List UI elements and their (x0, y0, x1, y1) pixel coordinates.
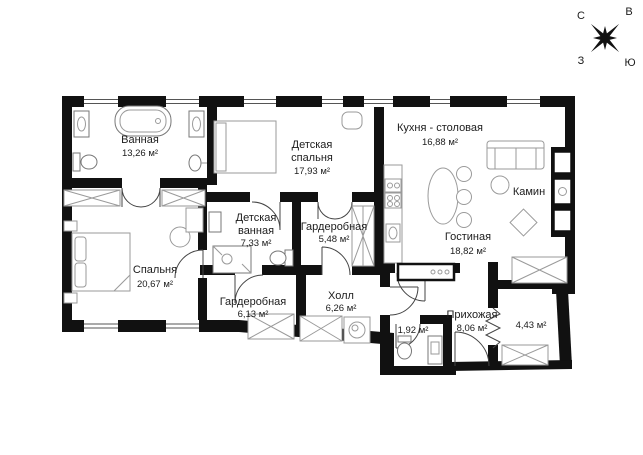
label-fireplace: Камин (513, 186, 545, 198)
floor-plan-svg: Ванная 13,26 м² Детская спальня 17,93 м²… (0, 0, 643, 455)
label-hall: Холл (328, 290, 354, 302)
label-wardrobe-small: Гардеробная (301, 221, 368, 233)
area-kids-bedroom: 17,93 м² (294, 166, 330, 177)
wardrobe-icon (512, 257, 567, 283)
sink-icon (189, 111, 204, 137)
area-wc: 1,92 м² (398, 325, 429, 336)
bedroom-furniture (64, 190, 205, 303)
sofa-icon (487, 141, 544, 169)
label-bedroom: Спальня (133, 264, 177, 276)
chair-icon (457, 190, 472, 205)
area-storage: 4,43 м² (516, 320, 547, 331)
area-kids-bath: 7,33 м² (241, 238, 272, 249)
area-bedroom: 20,67 м² (137, 279, 173, 290)
label-bathroom: Ванная (121, 134, 159, 146)
area-hall: 6,26 м² (326, 303, 357, 314)
area-kitchen: 16,88 м² (422, 137, 458, 148)
ottoman-icon (510, 209, 537, 236)
compass-east-label: В (625, 6, 632, 18)
closet-icon (64, 190, 205, 206)
label-kids-bath-1: Детская (236, 212, 277, 224)
chair-icon (457, 213, 472, 228)
sink-icon (74, 111, 89, 137)
label-kitchen: Кухня - столовая (397, 122, 483, 134)
area-wardrobe-big: 6,13 м² (238, 309, 269, 320)
wc-fixtures (398, 336, 443, 364)
area-living: 18,82 м² (450, 246, 486, 257)
area-bathroom: 13,26 м² (122, 148, 158, 159)
label-kids-bedroom-2: спальня (291, 152, 333, 164)
floor-plan-page: Ванная 13,26 м² Детская спальня 17,93 м²… (0, 0, 643, 455)
compass-star-icon (591, 24, 619, 52)
area-entry: 8,06 м² (457, 323, 488, 334)
label-kids-bath-2: ванная (238, 225, 274, 237)
counter-icon (384, 165, 402, 263)
desk-icon (186, 208, 203, 232)
label-kids-bedroom-1: Детская (292, 139, 333, 151)
sink-cabinet-icon (428, 336, 442, 364)
label-entry: Прихожая (447, 309, 498, 321)
side-table-icon (491, 176, 509, 194)
nightstand-icon (64, 221, 77, 231)
compass-south-label: Ю (624, 57, 635, 69)
shower-icon (213, 246, 251, 273)
kitchen-furniture (384, 165, 472, 280)
nightstand-icon (64, 293, 77, 303)
kids-bedroom-furniture (214, 112, 362, 173)
storage-furniture (502, 345, 548, 365)
toilet-icon (398, 336, 411, 342)
armchair-icon (342, 112, 362, 129)
wardrobe-small-furniture (352, 206, 374, 266)
label-living: Гостиная (445, 231, 491, 243)
compass-rose: С В З Ю (577, 6, 636, 69)
compass-north-label: С (577, 10, 585, 22)
toilet-icon (73, 153, 80, 171)
sink-icon (209, 212, 221, 232)
wardrobe-icon (352, 206, 374, 266)
dining-table-icon (428, 168, 458, 224)
bidet-icon (189, 155, 201, 171)
washer-icon (344, 317, 370, 343)
label-wardrobe-big: Гардеробная (220, 296, 287, 308)
island-cabinet-icon (398, 264, 454, 280)
compass-west-label: З (578, 55, 585, 67)
wardrobe-icon (502, 345, 548, 365)
area-wardrobe-small: 5,48 м² (319, 234, 350, 245)
wardrobe-icon (300, 316, 342, 341)
chair-icon (457, 167, 472, 182)
fireplace-icon (554, 152, 571, 231)
living-room-furniture (487, 141, 571, 283)
